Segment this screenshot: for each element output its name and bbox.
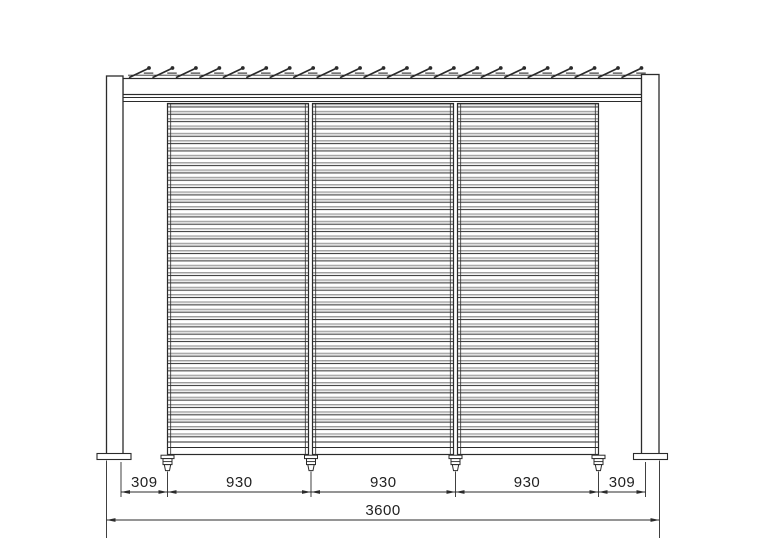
roof-louver-blade [246, 66, 270, 78]
panel-slats [168, 104, 309, 439]
technical-drawing-canvas: 309 930 930 930 309 3600 [0, 0, 770, 544]
roof-louver-blade [598, 66, 622, 78]
roof-louver-blade [504, 66, 528, 78]
top-beam [123, 79, 642, 102]
panel-slats [458, 104, 599, 439]
roof-louver-row [128, 66, 649, 78]
roof-louver-blade [199, 66, 223, 78]
roof-louver-blade [129, 66, 153, 78]
dimension-label-total-3600: 3600 [365, 502, 400, 519]
dimension-label-930-panel1: 930 [226, 474, 253, 491]
leveling-feet [161, 455, 605, 470]
dimension-label-930-panel3: 930 [514, 474, 541, 491]
left-base-plate [97, 454, 131, 460]
leveling-foot [592, 455, 605, 470]
roof-louver-blade [293, 66, 317, 78]
roof-louver-blade [387, 66, 411, 78]
louver-panel-2 [313, 104, 454, 455]
leveling-foot [449, 455, 462, 470]
panel-bottom-rail [458, 439, 599, 455]
roof-louver-blade [270, 66, 294, 78]
panel-slats [313, 104, 454, 439]
roof-louver-blade [575, 66, 599, 78]
roof-louver-blade [152, 66, 176, 78]
right-base-plate [634, 454, 668, 460]
panel-bottom-rail [313, 439, 454, 455]
louver-panel-3 [458, 104, 599, 455]
roof-louver-blade [457, 66, 481, 78]
pergola-elevation-drawing: 309 930 930 930 309 3600 [0, 0, 770, 544]
roof-louver-blade [481, 66, 505, 78]
roof-louver-blade [340, 66, 364, 78]
roof-louver-blade [528, 66, 552, 78]
dimension-label-309-left: 309 [131, 474, 158, 491]
louver-panel-1 [168, 104, 309, 455]
roof-louver-blade [434, 66, 458, 78]
left-post [97, 76, 131, 460]
roof-louver-blade [410, 66, 434, 78]
leveling-foot [305, 455, 318, 470]
roof-louver-blade [551, 66, 575, 78]
roof-louver-blade [223, 66, 247, 78]
leveling-foot [161, 455, 174, 470]
roof-louver-blade [176, 66, 200, 78]
dimension-label-309-right: 309 [609, 474, 636, 491]
roof-louver-blade [364, 66, 388, 78]
louver-panels [168, 104, 599, 455]
dimension-label-930-panel2: 930 [370, 474, 397, 491]
panel-bottom-rail [168, 439, 309, 455]
roof-louver-blade [317, 66, 341, 78]
right-post [634, 75, 668, 460]
dimension-annotations: 309 930 930 930 309 3600 [107, 461, 660, 539]
